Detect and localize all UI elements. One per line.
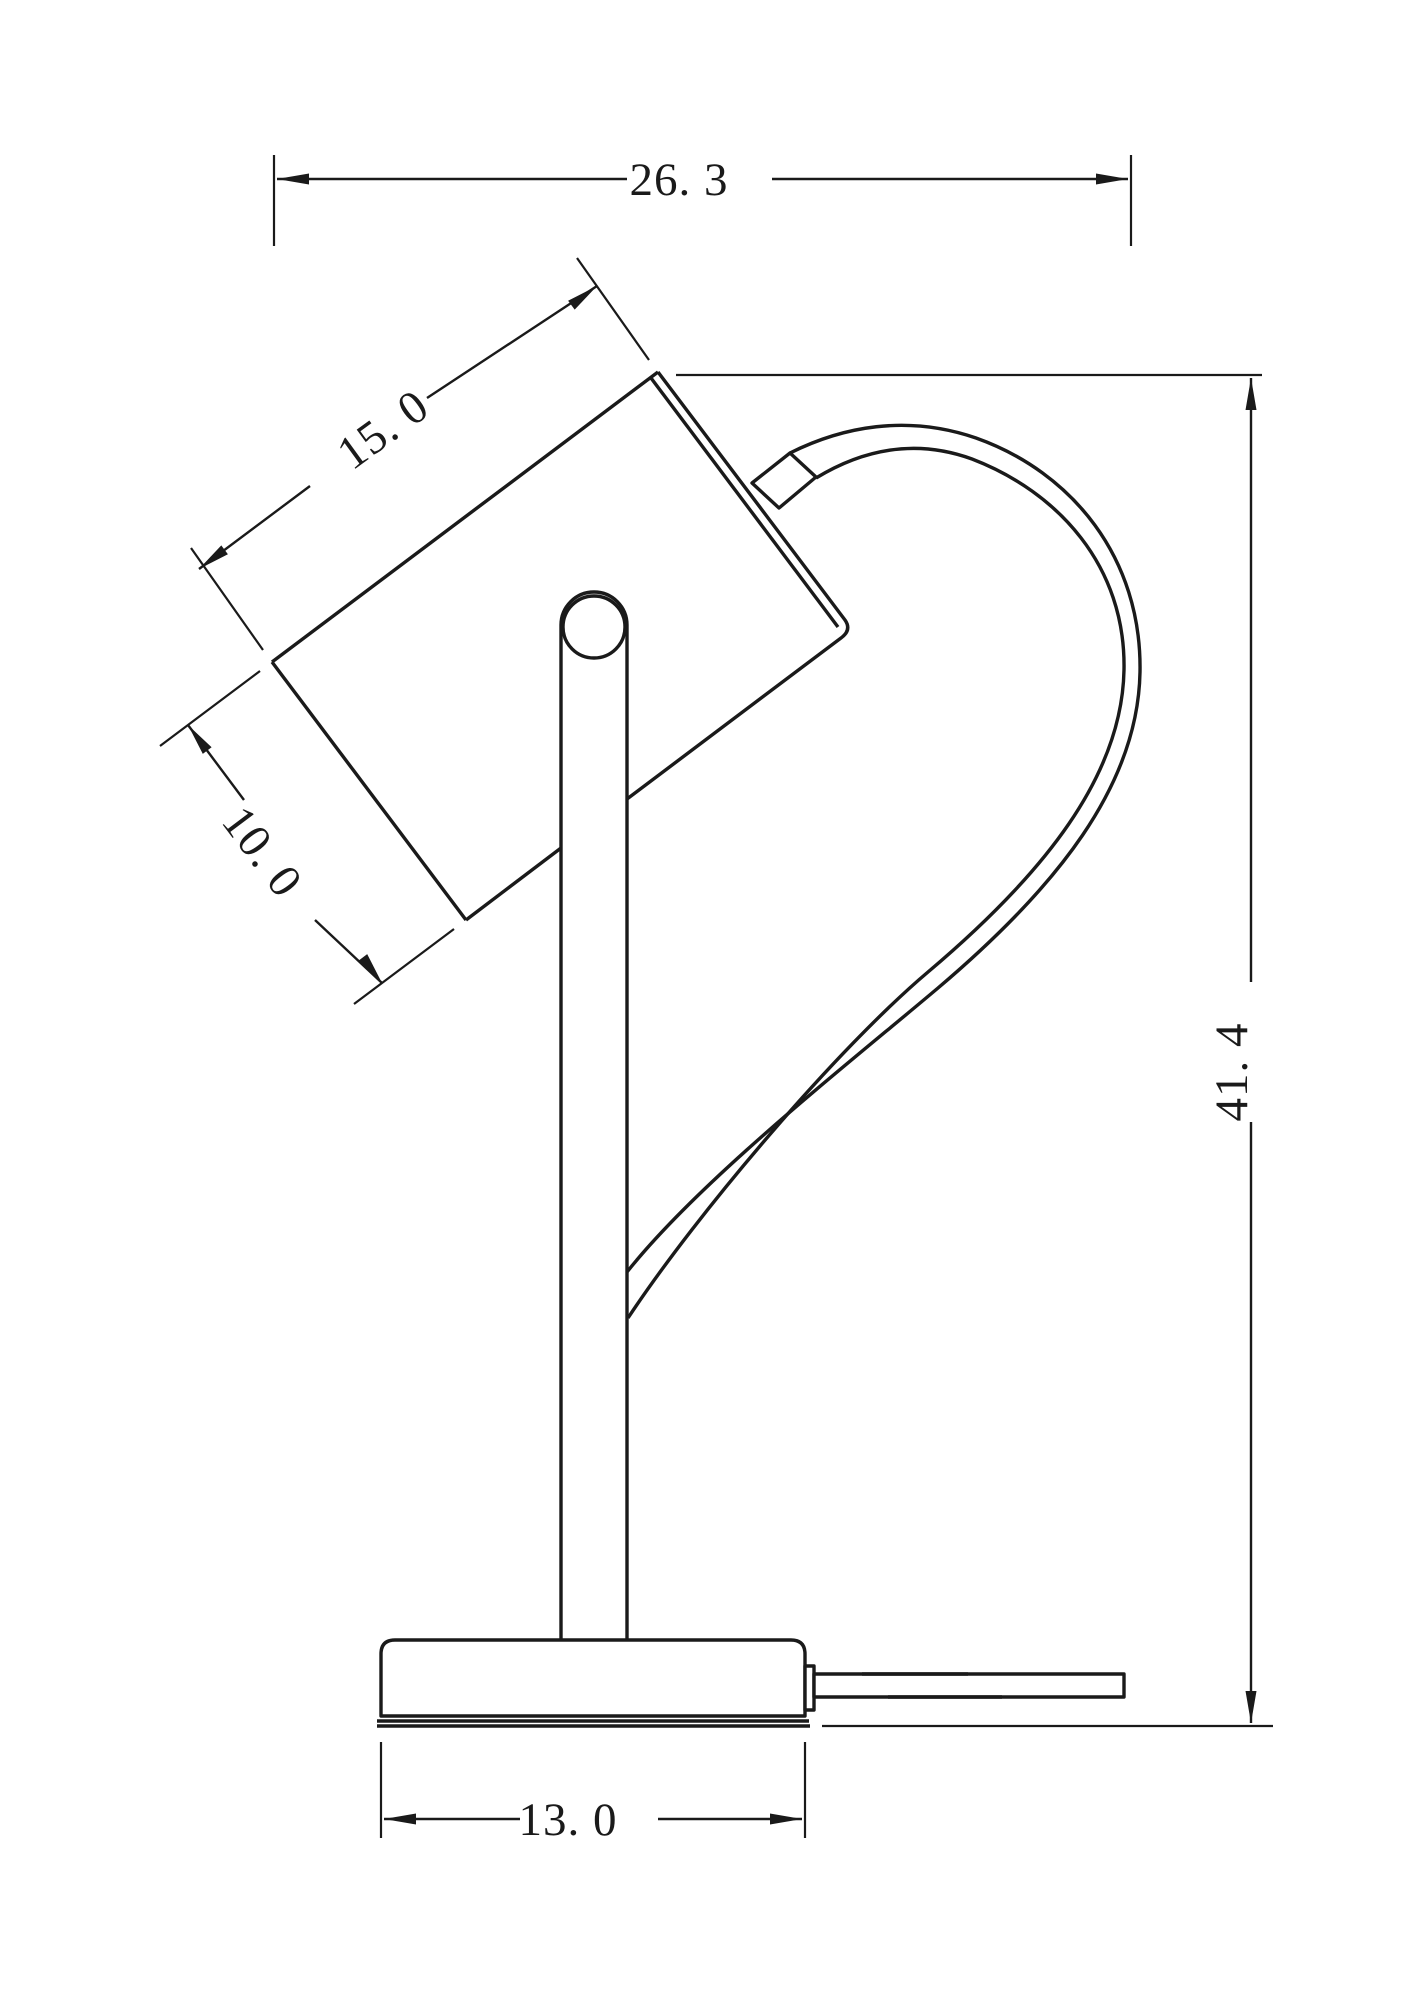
cable-cord — [814, 1674, 1124, 1697]
arrowhead-upper — [568, 286, 597, 310]
head-bottom-left-segment — [466, 848, 561, 920]
dim-label-base-width: 13. 0 — [519, 1794, 618, 1846]
arrowhead-lower — [199, 545, 228, 569]
arrowhead-lower — [358, 954, 382, 983]
dim-label-overall-width: 26. 3 — [630, 154, 729, 206]
base-body — [381, 1640, 805, 1716]
arrowhead-left — [384, 1814, 416, 1825]
arrowhead-right — [1096, 174, 1128, 185]
arrowhead-left — [277, 174, 309, 185]
dim-line-seg2 — [315, 920, 382, 983]
ext-line-upper — [160, 671, 260, 746]
dim-overall-height: 41. 4 — [676, 375, 1273, 1726]
drawing-sheet: 26. 3 15. 0 10. 0 — [0, 0, 1414, 2000]
pivot-knob — [563, 596, 625, 658]
dim-label-head-depth: 10. 0 — [211, 797, 312, 907]
hinge-bracket — [752, 453, 816, 508]
dim-base-width: 13. 0 — [381, 1742, 805, 1846]
arrowhead-upper — [188, 725, 212, 754]
dim-label-head-length: 15. 0 — [328, 380, 439, 480]
arrowhead-top — [1246, 378, 1257, 410]
support-arm — [627, 425, 1140, 1318]
ext-line-upper — [577, 258, 649, 360]
arrowhead-right — [770, 1814, 802, 1825]
ext-line-lower — [191, 548, 263, 650]
head-back-and-bottom-edge — [627, 372, 848, 799]
lamp-outline — [272, 372, 1140, 1726]
arrowhead-bottom — [1246, 1691, 1257, 1723]
dim-label-overall-height: 41. 4 — [1206, 1023, 1258, 1122]
dim-head-length: 15. 0 — [191, 258, 649, 650]
dimensions: 26. 3 15. 0 10. 0 — [160, 154, 1273, 1846]
head-back-inner-line — [651, 378, 838, 627]
pole — [561, 592, 627, 1640]
arm-outer-curve — [627, 425, 1140, 1272]
arm-inner-curve — [628, 448, 1124, 1318]
power-cable — [805, 1666, 1124, 1710]
dim-head-depth: 10. 0 — [160, 671, 454, 1004]
dim-overall-width: 26. 3 — [274, 154, 1131, 246]
lamp-dimension-drawing: 26. 3 15. 0 10. 0 — [0, 0, 1414, 2000]
base — [377, 1640, 810, 1726]
